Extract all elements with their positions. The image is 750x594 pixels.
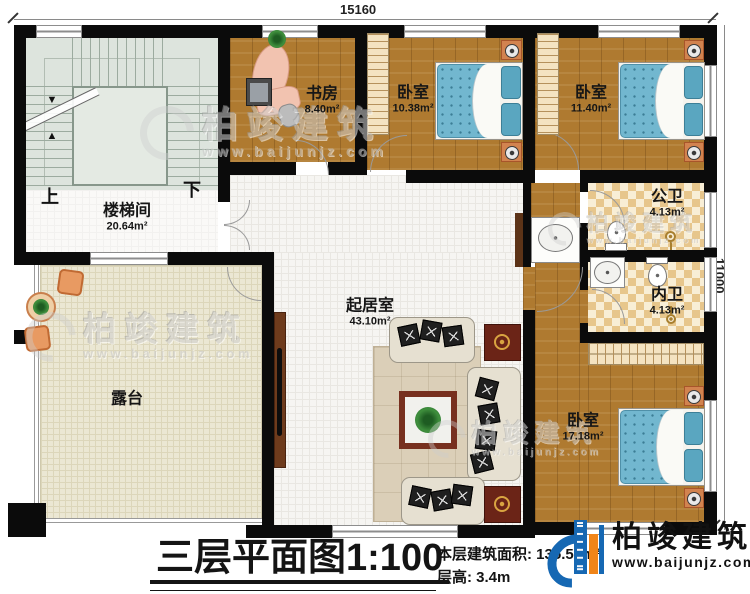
stair-treads-top xyxy=(72,38,168,86)
bed-duvet xyxy=(656,410,683,484)
floor-area-label: 本层建筑面积: xyxy=(437,546,532,563)
window xyxy=(598,25,680,38)
room-label-bedroom2: 卧室 11.40m² xyxy=(571,86,611,115)
brand-logo: 柏竣建筑 www.baijunjz.com xyxy=(552,517,750,579)
wall xyxy=(580,183,588,192)
wardrobe xyxy=(367,33,389,135)
bed-duvet xyxy=(655,64,683,138)
stair-direction-arrow: ▼ xyxy=(47,94,58,106)
plant-icon xyxy=(415,407,441,433)
bed-pillow xyxy=(501,66,521,99)
wall xyxy=(523,183,531,267)
lamp-icon xyxy=(494,334,510,350)
bed-pillow xyxy=(684,412,703,445)
dimension-tick xyxy=(7,12,18,23)
nightstand-icon xyxy=(684,40,704,60)
room-label-living: 起居室 43.10m² xyxy=(346,299,394,328)
doorway-floor xyxy=(523,267,535,310)
terrace-railing xyxy=(39,518,262,523)
wall xyxy=(580,170,710,183)
wall xyxy=(328,162,367,175)
floor-plan: 15160 11000 ▼ ▲ 上 下 xyxy=(0,0,750,594)
window xyxy=(704,192,717,248)
dimension-tick xyxy=(707,12,718,23)
computer-screen-icon xyxy=(250,83,268,102)
floor-height-line: 层高: 3.4m xyxy=(437,566,510,587)
lamp-icon xyxy=(494,496,510,512)
room-label-private-bath: 内卫 4.13m² xyxy=(650,288,685,317)
wall xyxy=(406,170,523,183)
cabinet-icon xyxy=(515,213,523,267)
cushion-icon xyxy=(397,323,421,347)
window xyxy=(404,25,486,38)
floor-height-value: 3.4m xyxy=(476,569,510,586)
plan-title: 三层平面图1:100 xyxy=(150,539,449,584)
nightstand-icon xyxy=(684,488,704,508)
plant-icon xyxy=(33,299,49,315)
brand-name: 柏竣建筑 xyxy=(612,523,750,553)
wall xyxy=(580,332,710,343)
terrace-floor xyxy=(40,265,262,522)
logo-building-bar xyxy=(574,520,587,574)
bed-duvet xyxy=(472,64,500,138)
window xyxy=(704,65,717,137)
corridor-floor xyxy=(531,183,580,217)
toilet-tank xyxy=(646,257,668,264)
nightstand-icon xyxy=(501,40,522,60)
wall xyxy=(14,25,26,255)
shower-drain-stem xyxy=(670,241,672,250)
nightstand-icon xyxy=(684,386,704,406)
wall xyxy=(262,252,274,530)
wall xyxy=(523,25,535,183)
logo-building-bar xyxy=(599,525,604,574)
dimension-line-top xyxy=(14,19,716,20)
living-floor xyxy=(230,175,523,252)
room-label-bedroom1: 卧室 10.38m² xyxy=(393,86,434,115)
logo-building-bar xyxy=(589,534,598,574)
toilet-icon xyxy=(648,264,667,287)
bed-pillow xyxy=(501,103,521,136)
room-label-study: 书房 8.40m² xyxy=(305,87,340,116)
plant-icon xyxy=(268,30,286,48)
bed-pillow xyxy=(684,449,703,482)
brand-logo-icon xyxy=(552,517,604,579)
room-label-public-bath: 公卫 4.13m² xyxy=(650,190,685,219)
cushion-icon xyxy=(419,319,442,342)
nightstand-icon xyxy=(684,142,704,162)
wall xyxy=(355,25,367,175)
wardrobe xyxy=(537,33,559,135)
wall xyxy=(14,252,90,265)
wall-column xyxy=(8,503,46,537)
wall xyxy=(523,310,535,525)
cushion-icon xyxy=(451,484,474,507)
cushion-icon xyxy=(475,429,498,452)
window xyxy=(90,252,168,265)
sink-icon xyxy=(594,261,621,284)
wall xyxy=(168,252,274,265)
dimension-width-label: 15160 xyxy=(340,2,376,17)
window xyxy=(704,257,717,312)
stair-treads-right xyxy=(168,86,218,186)
cushion-icon xyxy=(408,485,432,509)
wall xyxy=(222,162,296,175)
cushion-icon xyxy=(442,325,465,348)
bed-pillow xyxy=(684,103,703,136)
toilet-icon xyxy=(607,221,626,244)
bed-pillow xyxy=(684,66,703,99)
patio-chair-icon xyxy=(56,268,84,296)
tv-icon xyxy=(277,348,282,436)
plan-title-name: 三层平面图 xyxy=(156,537,346,579)
stair-direction-arrow: ▲ xyxy=(47,130,58,142)
toilet-tank xyxy=(605,243,627,251)
patio-chair-icon xyxy=(24,325,52,353)
stair-down-label: 下 xyxy=(183,176,201,202)
room-label-stairwell: 楼梯间 20.64m² xyxy=(103,204,151,233)
closet xyxy=(588,343,704,365)
floor-height-label: 层高: xyxy=(437,569,472,586)
plan-title-underline xyxy=(150,590,436,591)
window xyxy=(704,400,717,492)
nightstand-icon xyxy=(501,142,522,162)
window xyxy=(36,25,82,38)
room-label-terrace: 露台 xyxy=(111,392,143,409)
brand-website: www.baijunjz.com xyxy=(612,553,750,573)
cushion-icon xyxy=(477,402,500,425)
wall xyxy=(218,25,230,202)
room-label-bedroom3: 卧室 17.18m² xyxy=(563,414,604,443)
sink-icon xyxy=(538,224,573,252)
stair-up-label: 上 xyxy=(41,183,59,209)
plan-title-scale: 1:100 xyxy=(346,537,443,579)
